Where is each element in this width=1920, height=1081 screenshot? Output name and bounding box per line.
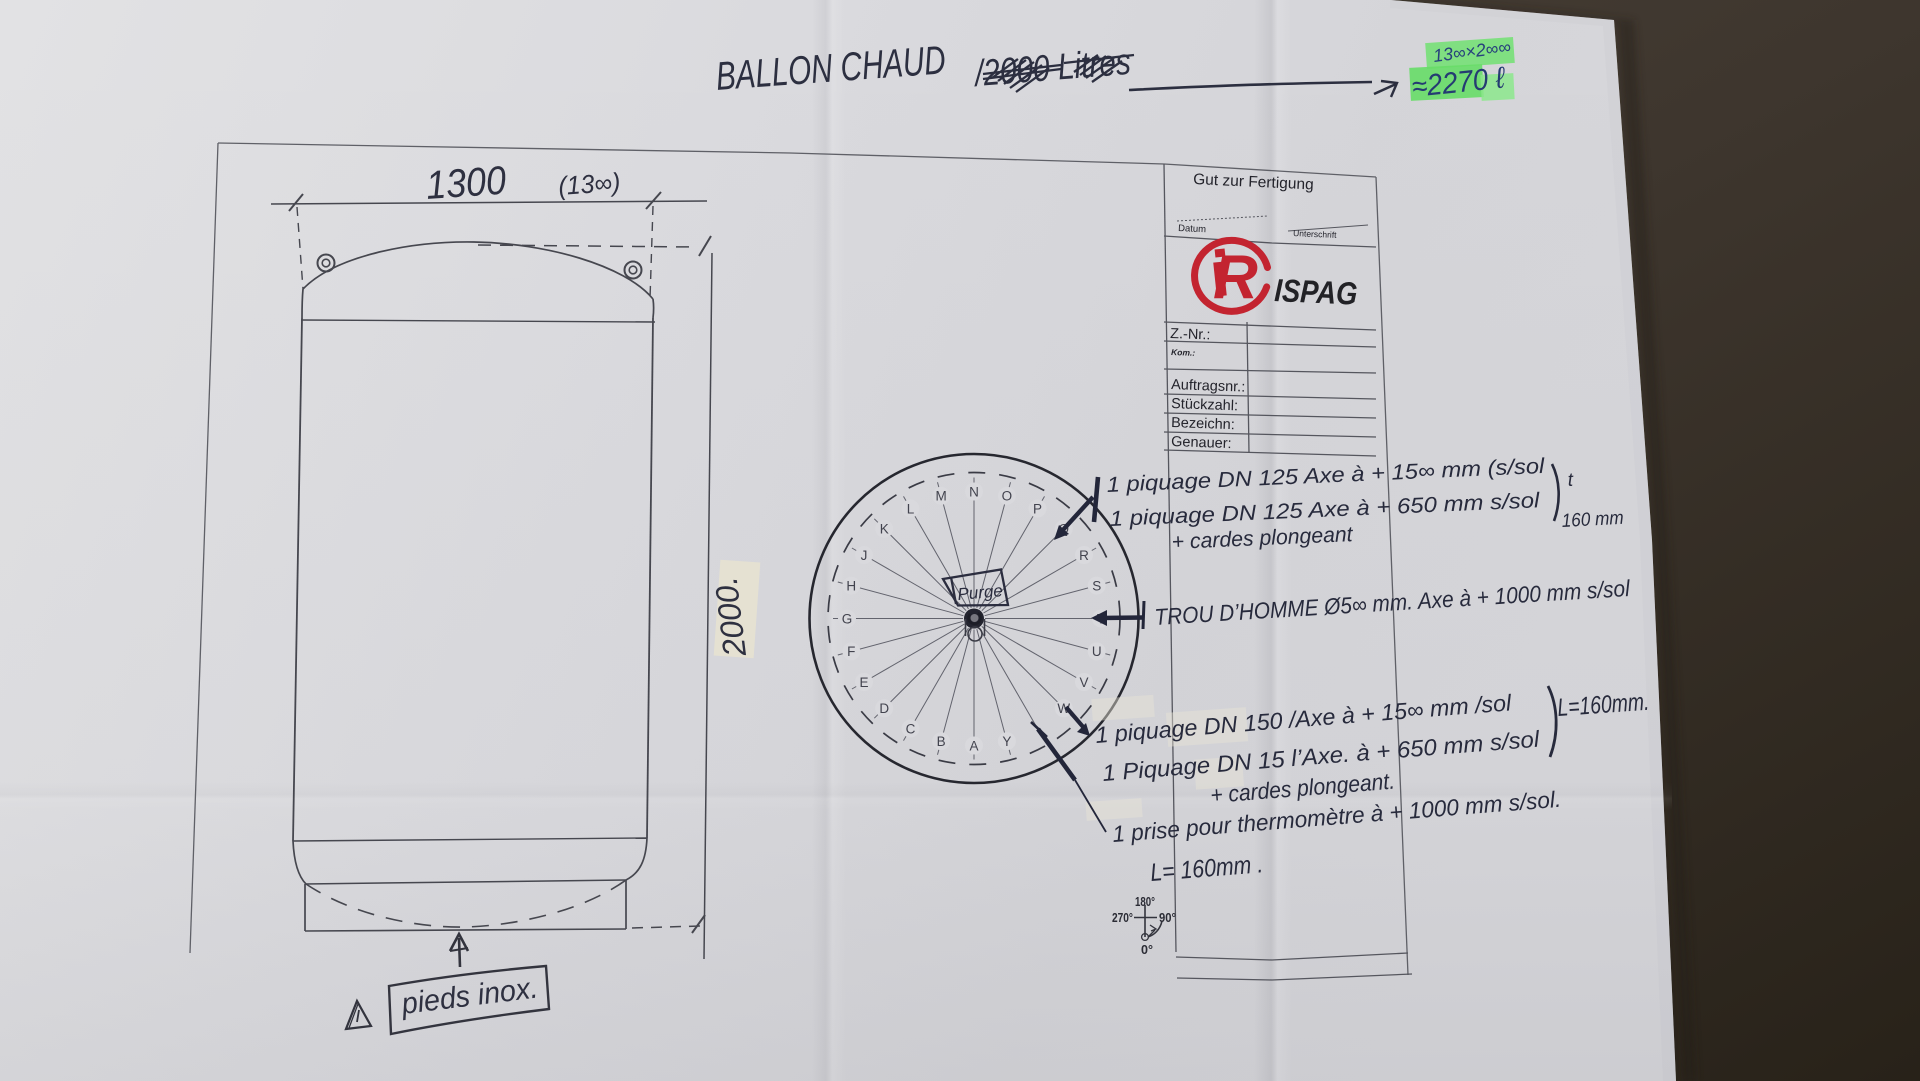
svg-text:L: L (907, 501, 915, 516)
svg-text:P: P (1033, 501, 1042, 516)
svg-text:G: G (842, 611, 853, 626)
svg-text:N: N (969, 484, 979, 499)
svg-text:160 mm: 160 mm (1561, 508, 1624, 532)
svg-text:J: J (861, 548, 868, 563)
svg-text:U: U (1092, 644, 1102, 659)
svg-text:Y: Y (1002, 734, 1011, 749)
svg-text:Kom.:: Kom.: (1171, 347, 1196, 358)
svg-text:E: E (859, 675, 868, 690)
svg-text:R: R (1079, 548, 1089, 563)
svg-text:Stückzahl:: Stückzahl: (1171, 396, 1238, 414)
svg-text:V: V (1079, 675, 1088, 690)
svg-text:F: F (847, 644, 855, 659)
svg-text:K: K (880, 522, 889, 537)
svg-text:1300: 1300 (425, 159, 508, 208)
svg-text:180°: 180° (1135, 895, 1155, 909)
svg-text:S: S (1092, 578, 1101, 593)
svg-text:Purge: Purge (957, 581, 1004, 604)
svg-text:ISPAG: ISPAG (1274, 272, 1359, 312)
svg-text:Auftragsnr.:: Auftragsnr.: (1171, 377, 1246, 396)
svg-text:C: C (906, 721, 916, 736)
svg-text:M: M (935, 489, 946, 504)
svg-text:(13∞): (13∞) (557, 167, 621, 201)
svg-text:Datum: Datum (1178, 223, 1207, 235)
svg-text:D: D (879, 701, 889, 716)
svg-text:270°: 270° (1112, 911, 1133, 925)
svg-text:Bezeichn:: Bezeichn: (1171, 415, 1235, 433)
svg-text:0°: 0° (1141, 943, 1153, 957)
svg-text:B: B (937, 734, 946, 749)
svg-text:90°: 90° (1159, 911, 1176, 925)
svg-text:A: A (969, 738, 978, 753)
svg-text:H: H (846, 578, 856, 593)
svg-text:O: O (1002, 489, 1013, 504)
svg-text:Z.-Nr.:: Z.-Nr.: (1170, 326, 1211, 343)
svg-text:Genauer:: Genauer: (1171, 434, 1232, 452)
svg-text:Unterschrift: Unterschrift (1293, 228, 1338, 240)
